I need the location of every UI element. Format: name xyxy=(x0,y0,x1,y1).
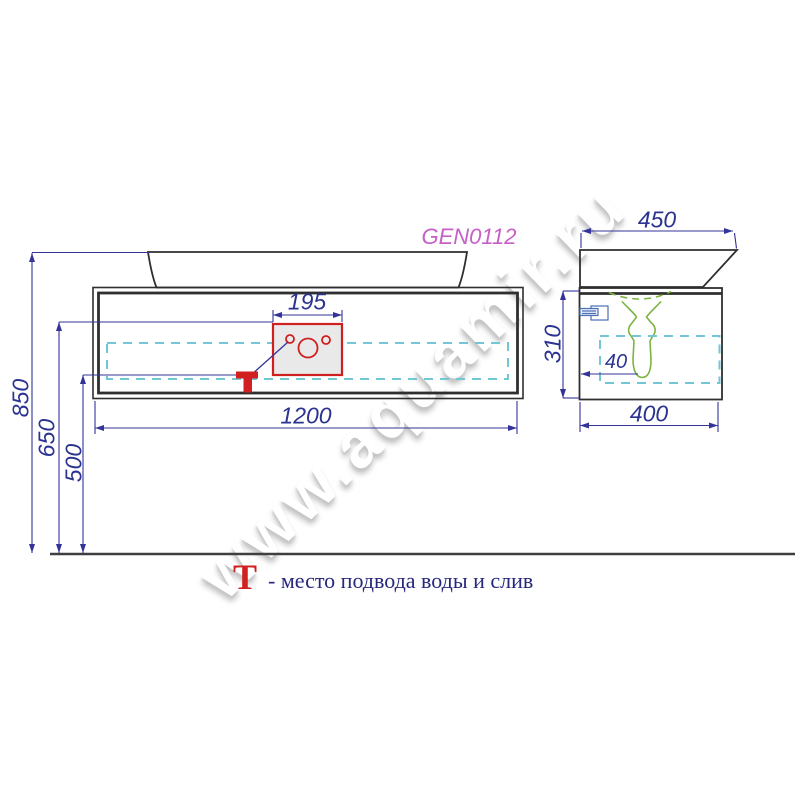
technical-drawing-stage: www.aquamir.ru xyxy=(0,0,800,800)
dim-195-cutout-width: 195 xyxy=(288,291,326,314)
dim-450-basin-depth: 450 xyxy=(638,209,676,232)
dim-650-connection-top: 650 xyxy=(36,419,59,457)
t-marker xyxy=(236,372,258,393)
legend: T - место подвода воды и слив xyxy=(233,561,533,594)
dim-310-cabinet-height: 310 xyxy=(542,325,565,363)
front-view xyxy=(93,252,523,399)
dimension-lines xyxy=(29,228,737,553)
drawing-linework xyxy=(0,0,800,800)
wall-bracket xyxy=(580,306,608,320)
legend-description: - место подвода воды и слив xyxy=(268,561,533,594)
basin-front-outline xyxy=(148,252,467,288)
service-cutout-plate xyxy=(273,324,342,375)
dim-400-cabinet-depth: 400 xyxy=(630,403,668,426)
dim-40-back-clearance: 40 xyxy=(605,352,627,372)
dim-1200-cabinet-width: 1200 xyxy=(280,405,331,428)
dim-850-overall-height: 850 xyxy=(10,379,33,417)
legend-t-symbol: T xyxy=(233,561,257,593)
basin-side-outline xyxy=(580,250,737,287)
side-view xyxy=(580,250,738,400)
dim-500-connection-height: 500 xyxy=(63,444,86,482)
product-code-label: GEN0112 xyxy=(422,224,517,250)
